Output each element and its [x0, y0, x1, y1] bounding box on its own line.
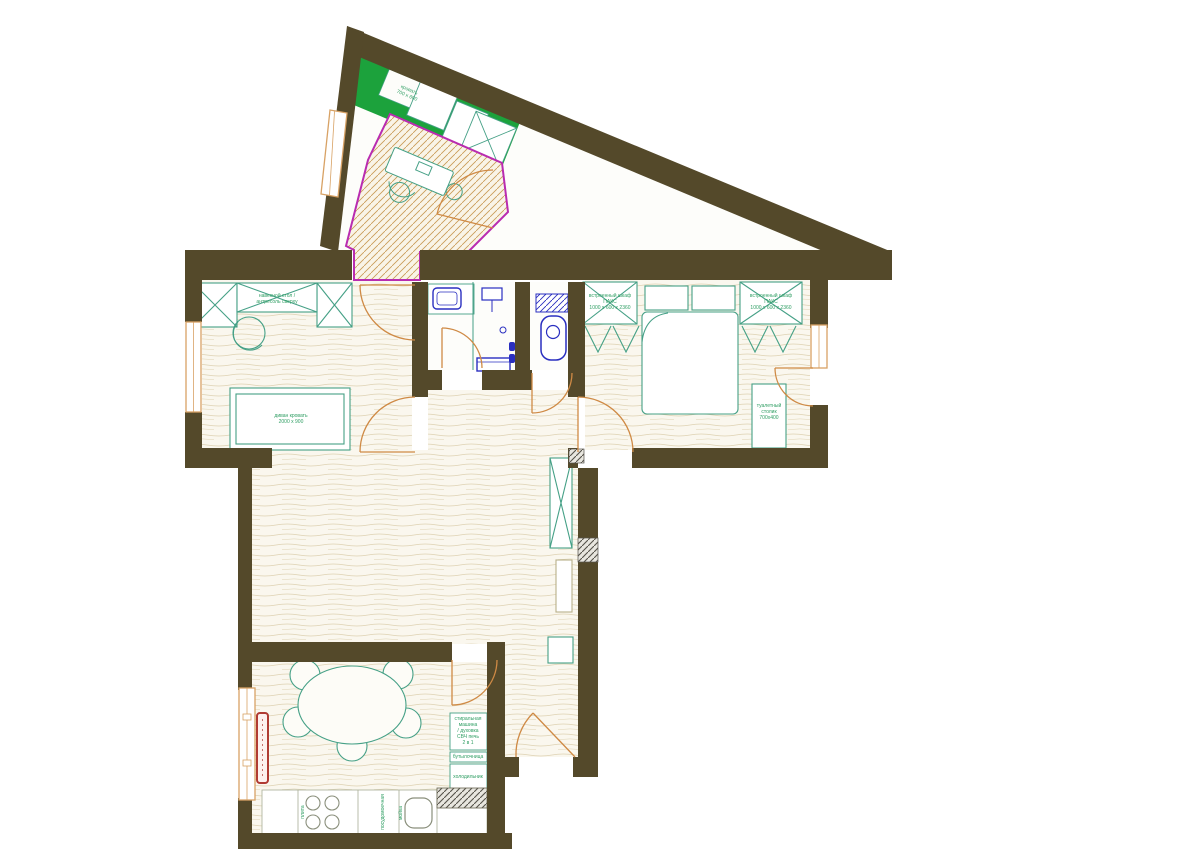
headboard-console-left — [645, 286, 688, 310]
wall-entry-bottom-r — [573, 757, 598, 777]
floor-plan: кровать 700 х 600 навесной стол / антрес… — [0, 0, 1200, 849]
wall-bath-bottom-l — [412, 370, 442, 390]
label-sofa-bed: диван кровать 2000 х 900 — [274, 413, 307, 425]
label-dressing-table: туалетный столик 700х400 — [757, 403, 782, 421]
wall-kitchen-left-upper — [238, 662, 252, 690]
label-hanging-desk: навесной стол / антресоль сверху — [256, 293, 297, 305]
label-bottle-rack: бутылочница — [453, 754, 484, 760]
wall-kitchen-left-lower — [238, 798, 252, 838]
vent-shaft — [437, 788, 487, 808]
towel-hook — [509, 354, 515, 363]
label-wardrobe-left: встроенный шкаф ПАКС 1000 х 600 х 2360 — [589, 293, 631, 311]
double-bed — [642, 312, 738, 414]
wall-kitchen-top — [238, 642, 452, 662]
wall-bedroom-right-lower — [810, 405, 828, 468]
wall-wc-bedroom — [568, 282, 585, 372]
label-wardrobe-right: встроенный шкаф ПАКС 1000 х 600 х 2360 — [750, 293, 792, 311]
label-appliances: стиральная машина / духовка СВЧ печь 2 в… — [455, 716, 482, 746]
kitchen-sink — [405, 798, 432, 828]
wall-bedroom-right-upper — [810, 278, 828, 328]
wall-left-upper — [185, 250, 202, 322]
towel-hook — [509, 342, 515, 351]
wc-shelf — [536, 294, 568, 312]
wall-living-bottom — [185, 448, 272, 468]
wall-top-left — [185, 250, 352, 280]
label-hob: плита — [300, 805, 306, 818]
dining-table — [298, 666, 406, 744]
shower-head — [482, 288, 502, 300]
radiator — [257, 713, 268, 783]
wall-entry-bottom-l — [497, 757, 519, 777]
floor-hall — [428, 390, 578, 452]
wall-central-left — [238, 468, 252, 642]
wall-hall-right — [578, 468, 598, 777]
hall-shelf — [556, 560, 572, 612]
floor-plan-drawing — [0, 0, 1200, 849]
headboard-console-right — [692, 286, 735, 310]
label-dishwasher: посудомоечная — [380, 794, 386, 830]
floor-central-room — [252, 450, 578, 644]
wall-kitchen-bottom — [238, 833, 512, 849]
wall-bath-bottom-r — [482, 370, 532, 390]
label-sink: мойка — [398, 806, 404, 820]
vent-block — [569, 449, 584, 463]
wall-bedroom-bottom — [632, 448, 810, 468]
wall-bath-wc — [515, 282, 530, 372]
vent-block — [578, 538, 598, 562]
label-fridge: холодильник — [453, 774, 483, 780]
wall-top-right — [420, 250, 892, 280]
hall-console — [548, 637, 573, 663]
